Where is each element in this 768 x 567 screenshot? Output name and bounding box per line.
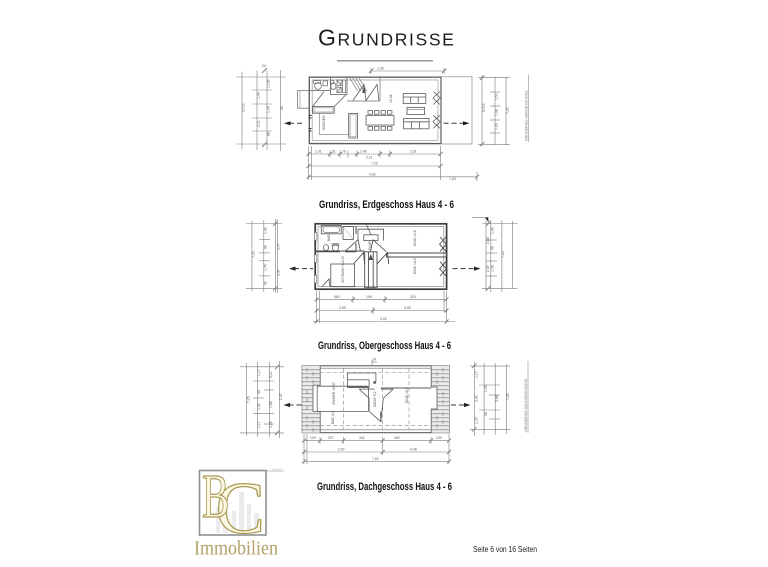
- svg-text:315: 315: [410, 295, 416, 299]
- svg-text:1,43: 1,43: [263, 227, 267, 234]
- svg-text:51: 51: [332, 150, 336, 154]
- svg-text:38: 38: [484, 412, 488, 416]
- svg-text:96: 96: [263, 245, 267, 249]
- svg-text:1,05: 1,05: [269, 421, 273, 428]
- svg-text:1,38: 1,38: [495, 109, 499, 116]
- svg-text:7,25: 7,25: [252, 251, 256, 258]
- svg-text:146: 146: [366, 295, 372, 299]
- svg-text:2,77: 2,77: [277, 243, 281, 250]
- svg-text:1,43: 1,43: [491, 227, 495, 234]
- svg-text:94: 94: [257, 390, 261, 394]
- svg-text:1,17: 1,17: [257, 421, 261, 428]
- svg-text:1,46: 1,46: [360, 150, 367, 154]
- svg-text:2,57: 2,57: [338, 448, 345, 452]
- svg-text:7,23: 7,23: [371, 162, 378, 166]
- svg-text:ZIMMER 15,97: ZIMMER 15,97: [332, 382, 336, 405]
- svg-text:SCHRANK H=2,25: SCHRANK H=2,25: [341, 256, 345, 283]
- svg-text:7,25: 7,25: [506, 393, 510, 400]
- svg-text:2,41: 2,41: [474, 395, 478, 402]
- svg-text:KOCHEN: KOCHEN: [322, 115, 326, 130]
- svg-text:1,85: 1,85: [269, 401, 273, 408]
- svg-text:2,89: 2,89: [339, 306, 346, 310]
- svg-text:FLUR: FLUR: [368, 241, 372, 250]
- svg-text:Seite 6 von 16 Seiten: Seite 6 von 16 Seiten: [473, 545, 537, 554]
- svg-text:BAD 4,9: BAD 4,9: [331, 411, 335, 424]
- svg-text:GRUNDRISS ERDGESCHOSS: GRUNDRISS ERDGESCHOSS: [525, 90, 529, 141]
- svg-text:1,05: 1,05: [474, 417, 478, 424]
- svg-text:2,47: 2,47: [279, 393, 283, 400]
- svg-text:4,59: 4,59: [404, 306, 411, 310]
- svg-text:B: B: [202, 463, 229, 531]
- svg-text:1,01: 1,01: [315, 150, 322, 154]
- svg-text:4,03: 4,03: [380, 317, 387, 321]
- svg-text:103: 103: [310, 436, 316, 440]
- svg-text:1,76: 1,76: [267, 106, 271, 113]
- svg-text:663: 663: [334, 295, 340, 299]
- svg-text:2,51: 2,51: [410, 150, 417, 154]
- svg-text:1,06: 1,06: [484, 385, 488, 392]
- svg-text:KIND 16,5: KIND 16,5: [405, 387, 409, 403]
- svg-text:76: 76: [342, 150, 346, 154]
- svg-text:4,28: 4,28: [410, 448, 417, 452]
- svg-text:7,63: 7,63: [449, 177, 456, 181]
- svg-text:207: 207: [328, 436, 334, 440]
- svg-text:2,11: 2,11: [366, 156, 372, 160]
- svg-text:2,47: 2,47: [486, 265, 490, 272]
- svg-text:1,96: 1,96: [377, 67, 384, 71]
- svg-text:1,17: 1,17: [474, 371, 478, 378]
- svg-text:7,63: 7,63: [372, 457, 379, 461]
- svg-text:2,86: 2,86: [486, 237, 490, 244]
- svg-text:5,715: 5,715: [482, 103, 486, 112]
- svg-text:5,715: 5,715: [242, 103, 246, 112]
- svg-text:DIELE 5,2: DIELE 5,2: [373, 391, 377, 407]
- svg-text:15,38: 15,38: [389, 94, 393, 103]
- svg-text:1,51: 1,51: [495, 93, 499, 100]
- svg-text:2,01: 2,01: [257, 120, 261, 127]
- svg-text:Grundriss, Dachgeschoss Haus 4: Grundriss, Dachgeschoss Haus 4 - 6: [317, 481, 452, 493]
- svg-text:24: 24: [262, 64, 266, 68]
- svg-text:36: 36: [280, 106, 284, 110]
- svg-text:342: 342: [359, 436, 365, 440]
- svg-text:7,25: 7,25: [501, 251, 505, 258]
- svg-text:1,26: 1,26: [495, 123, 499, 130]
- svg-text:362: 362: [394, 436, 400, 440]
- svg-text:52: 52: [263, 281, 267, 285]
- svg-text:BAD: BAD: [327, 233, 331, 241]
- svg-text:1,36: 1,36: [257, 92, 261, 99]
- svg-text:2,47: 2,47: [277, 269, 281, 276]
- svg-text:103: 103: [436, 436, 442, 440]
- svg-text:1,78: 1,78: [491, 265, 495, 272]
- svg-text:KIND 14,5: KIND 14,5: [413, 258, 417, 274]
- svg-text:1,76: 1,76: [263, 264, 267, 271]
- svg-text:Immobilien: Immobilien: [194, 538, 278, 560]
- svg-text:1,52: 1,52: [257, 403, 261, 410]
- svg-text:7,25: 7,25: [506, 107, 510, 114]
- svg-text:4,02: 4,02: [369, 172, 376, 176]
- svg-text:2,11: 2,11: [269, 372, 273, 378]
- svg-text:1,17: 1,17: [257, 369, 261, 376]
- svg-text:96: 96: [491, 246, 495, 250]
- svg-text:1,135: 1,135: [267, 79, 271, 88]
- svg-text:3,86: 3,86: [495, 395, 499, 402]
- svg-text:7,25: 7,25: [246, 396, 250, 403]
- svg-text:Grundriss, Obergeschoss Haus 4: Grundriss, Obergeschoss Haus 4 - 6: [318, 340, 451, 352]
- svg-text:KIND 13,8: KIND 13,8: [413, 230, 417, 246]
- svg-text:GRUNDRISSE: GRUNDRISSE: [318, 25, 456, 51]
- svg-text:88: 88: [267, 132, 271, 136]
- svg-text:GRUNDRISS DACHGESCHOSS: GRUNDRISS DACHGESCHOSS: [524, 378, 528, 432]
- svg-text:24: 24: [373, 358, 377, 362]
- svg-text:Grundriss, Erdgeschoss Haus 4: Grundriss, Erdgeschoss Haus 4 - 6: [319, 199, 454, 211]
